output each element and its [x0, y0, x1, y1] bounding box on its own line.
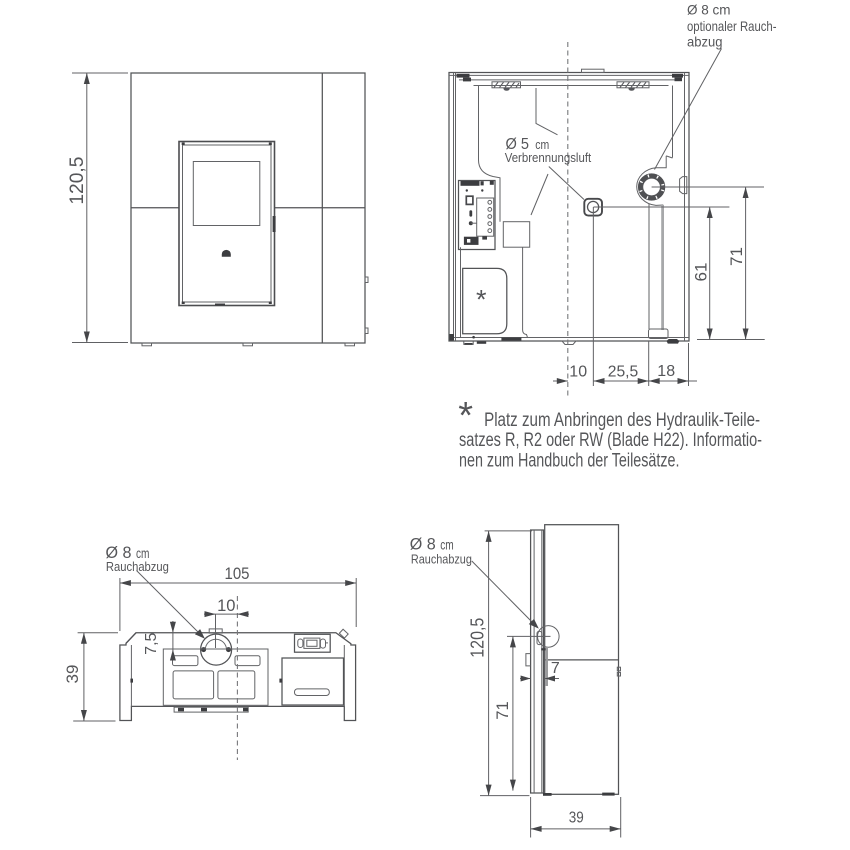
svg-text:120,5: 120,5: [67, 157, 88, 205]
svg-text:61: 61: [691, 263, 710, 282]
svg-text:cm: cm: [136, 545, 150, 561]
svg-text:Platz zum Anbringen des Hydrau: Platz zum Anbringen des Hydraulik-Teile-: [484, 410, 760, 431]
svg-text:25,5: 25,5: [608, 364, 639, 381]
svg-text:Verbrennungsluft: Verbrennungsluft: [505, 150, 592, 165]
svg-text:7,5: 7,5: [143, 632, 160, 654]
svg-text:7: 7: [551, 660, 560, 677]
svg-text:120,5: 120,5: [468, 618, 488, 658]
svg-text:39: 39: [569, 810, 584, 827]
svg-text:*: *: [476, 285, 487, 315]
svg-text:105: 105: [225, 564, 250, 583]
svg-text:10: 10: [569, 364, 587, 381]
svg-text:18: 18: [657, 363, 675, 380]
svg-text:Rauchabzug: Rauchabzug: [106, 560, 169, 574]
svg-text:optionaler Rauch-: optionaler Rauch-: [687, 18, 777, 34]
svg-text:71: 71: [727, 247, 746, 266]
svg-text:abzug: abzug: [687, 34, 723, 50]
svg-text:cm: cm: [440, 537, 454, 553]
svg-text:Rauchabzug: Rauchabzug: [411, 553, 472, 567]
svg-text:10: 10: [217, 597, 235, 615]
svg-text:71: 71: [494, 701, 512, 719]
svg-text:satzes R, R2 oder RW (Blade H2: satzes R, R2 oder RW (Blade H22). Inform…: [459, 430, 762, 451]
svg-text:Ø 8: Ø 8: [410, 535, 436, 554]
svg-text:nen zum Handbuch der Teilesätz: nen zum Handbuch der Teilesätze.: [459, 450, 680, 471]
svg-text:Ø 8 cm: Ø 8 cm: [687, 2, 731, 18]
svg-text:39: 39: [63, 665, 82, 684]
